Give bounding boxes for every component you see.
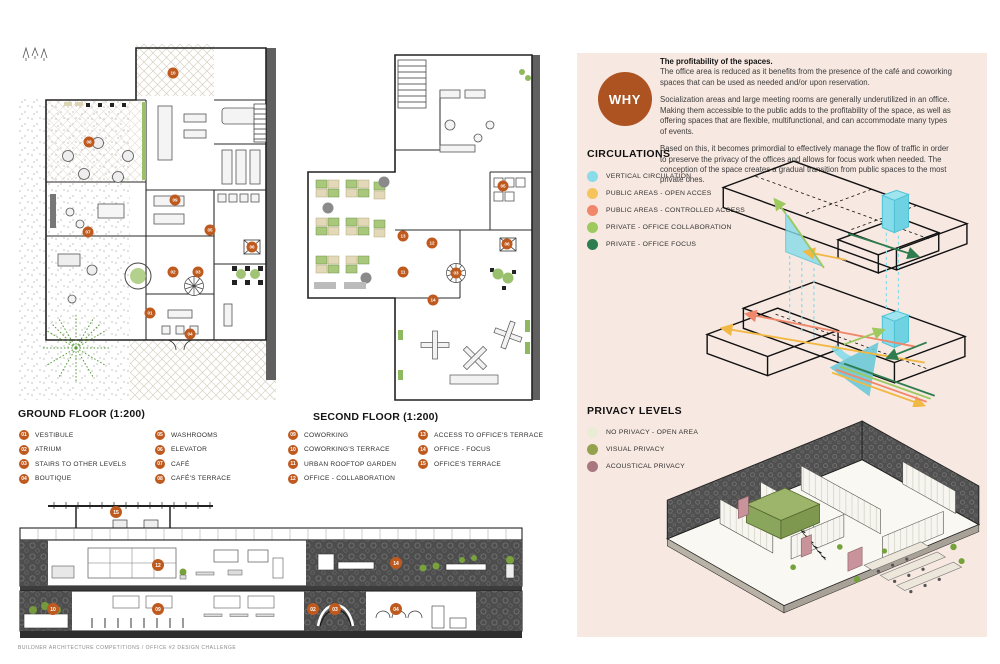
key-label: VERTICAL CIRCULATION <box>606 171 691 182</box>
legend-number-badge: 02 <box>19 445 29 455</box>
key-color-swatch <box>587 427 598 438</box>
plan-marker-12: 12 <box>152 559 164 571</box>
presentation-board: 10080905070602030104 <box>0 0 1000 664</box>
legend-item-01: 01VESTIBULE <box>19 430 126 440</box>
legend-label: ELEVATOR <box>171 446 207 453</box>
key-color-swatch <box>587 205 598 216</box>
svg-text:04: 04 <box>393 607 399 613</box>
right-panel: WHY The profitability of the spaces. The… <box>577 53 987 637</box>
site-tree-symbols <box>23 48 47 61</box>
legend-label: BOUTIQUE <box>35 475 71 482</box>
circulation-axonometric <box>685 155 977 407</box>
plan-marker-14: 14 <box>390 557 402 569</box>
legend-ground-col2: 05WASHROOMS06ELEVATOR07CAFÉ08CAFÉ'S TERR… <box>155 430 231 484</box>
legend-number-badge: 15 <box>418 459 428 469</box>
svg-text:04: 04 <box>187 332 193 337</box>
legend-item-04: 04BOUTIQUE <box>19 474 126 484</box>
plan-marker-10: 10 <box>47 603 59 615</box>
plan-marker-08: 08 <box>84 137 95 148</box>
plan-marker-04: 04 <box>185 329 196 340</box>
key-color-swatch <box>587 222 598 233</box>
plan-marker-05: 05 <box>498 181 509 192</box>
legend-label: COWORKING <box>304 432 348 439</box>
legend-ground-col1: 01VESTIBULE02ATRIUM03STAIRS TO OTHER LEV… <box>19 430 126 484</box>
svg-text:09: 09 <box>172 198 178 203</box>
legend-number-badge: 10 <box>288 445 298 455</box>
svg-text:13: 13 <box>400 234 406 239</box>
plan-marker-01: 01 <box>145 308 156 319</box>
ground-floor-plan: 10080905070602030104 <box>18 44 290 400</box>
why-badge: WHY <box>598 72 652 126</box>
legend-item-12: 12OFFICE - COLLABORATION <box>288 474 396 484</box>
plan-marker-10: 10 <box>168 68 179 79</box>
svg-text:14: 14 <box>393 561 399 567</box>
plan-marker-03: 03 <box>329 603 341 615</box>
legend-label: ACCESS TO OFFICE'S TERRACE <box>434 432 543 439</box>
legend-item-03: 03STAIRS TO OTHER LEVELS <box>19 459 126 469</box>
plan-marker-05: 05 <box>205 225 216 236</box>
legend-item-02: 02ATRIUM <box>19 445 126 455</box>
svg-text:10: 10 <box>50 607 56 613</box>
svg-text:14: 14 <box>430 298 436 303</box>
key-color-swatch <box>587 444 598 455</box>
plan-marker-06: 06 <box>502 239 513 250</box>
svg-text:01: 01 <box>147 311 153 316</box>
legend-number-badge: 01 <box>19 430 29 440</box>
legend-number-badge: 11 <box>288 459 298 469</box>
plan-marker-06: 06 <box>247 242 258 253</box>
second-floor-plan: 05131206110314 <box>300 30 560 405</box>
svg-text:08: 08 <box>86 140 92 145</box>
svg-text:12: 12 <box>155 563 161 569</box>
legend-item-13: 13ACCESS TO OFFICE'S TERRACE <box>418 430 543 440</box>
legend-label: STAIRS TO OTHER LEVELS <box>35 461 126 468</box>
key-color-swatch <box>587 188 598 199</box>
spiral-stair <box>185 277 204 296</box>
legend-item-05: 05WASHROOMS <box>155 430 231 440</box>
legend-item-06: 06ELEVATOR <box>155 445 231 455</box>
plan-marker-09: 09 <box>170 195 181 206</box>
legend-label: OFFICE'S TERRACE <box>434 461 501 468</box>
legend-item-07: 07CAFÉ <box>155 459 231 469</box>
legend-number-badge: 03 <box>19 459 29 469</box>
legend-second-col2: 13ACCESS TO OFFICE'S TERRACE14OFFICE - F… <box>418 430 543 469</box>
roof-pergola <box>48 502 213 528</box>
svg-text:06: 06 <box>249 245 255 250</box>
svg-text:11: 11 <box>401 270 406 275</box>
legend-number-badge: 04 <box>19 474 29 484</box>
privacy-axonometric <box>649 416 989 621</box>
svg-text:09: 09 <box>155 607 161 613</box>
svg-text:03: 03 <box>453 271 459 276</box>
legend-item-09: 09COWORKING <box>288 430 396 440</box>
legend-number-badge: 14 <box>418 445 428 455</box>
second-floor-title: SECOND FLOOR (1:200) <box>313 411 438 423</box>
svg-text:15: 15 <box>113 510 119 516</box>
plan-marker-13: 13 <box>398 231 409 242</box>
plan-marker-03: 03 <box>451 268 462 279</box>
meeting-room-furniture <box>154 106 206 224</box>
why-paragraph-2: Socialization areas and large meeting ro… <box>660 95 952 137</box>
plan-marker-07: 07 <box>83 227 94 238</box>
legend-label: CAFÉ <box>171 461 190 468</box>
why-heading: The profitability of the spaces. <box>660 57 952 67</box>
legend-second-col1: 09COWORKING10COWORKING'S TERRACE11URBAN … <box>288 430 396 484</box>
legend-number-badge: 07 <box>155 459 165 469</box>
legend-number-badge: 13 <box>418 430 428 440</box>
legend-number-badge: 05 <box>155 430 165 440</box>
board-footer: BUILDNER ARCHITECTURE COMPETITIONS / OFF… <box>18 645 236 651</box>
stair-glyph <box>398 60 426 108</box>
upper-floor-slab <box>723 161 967 273</box>
svg-text:03: 03 <box>332 607 338 613</box>
legend-item-08: 08CAFÉ'S TERRACE <box>155 474 231 484</box>
plan-marker-12: 12 <box>427 238 438 249</box>
building-section: 1512141009020304 <box>18 498 538 640</box>
plan-marker-03: 03 <box>193 267 204 278</box>
svg-text:06: 06 <box>504 242 510 247</box>
key-color-swatch <box>587 461 598 472</box>
key-color-swatch <box>587 171 598 182</box>
legend-label: COWORKING'S TERRACE <box>304 446 390 453</box>
svg-text:05: 05 <box>207 228 213 233</box>
legend-label: CAFÉ'S TERRACE <box>171 475 231 482</box>
plan-marker-14: 14 <box>428 295 439 306</box>
key-color-swatch <box>587 239 598 250</box>
plan-marker-11: 11 <box>398 267 409 278</box>
circulation-arrows <box>723 200 934 404</box>
plan-marker-02: 02 <box>307 603 319 615</box>
legend-label: WASHROOMS <box>171 432 218 439</box>
legend-label: ATRIUM <box>35 446 61 453</box>
plan-marker-09: 09 <box>152 603 164 615</box>
ground-floor-title: GROUND FLOOR (1:200) <box>18 408 145 420</box>
legend-label: VESTIBULE <box>35 432 74 439</box>
legend-item-11: 11URBAN ROOFTOP GARDEN <box>288 459 396 469</box>
legend-item-15: 15OFFICE'S TERRACE <box>418 459 543 469</box>
why-paragraph-1: The office area is reduced as it benefit… <box>660 67 952 88</box>
plan-marker-02: 02 <box>168 267 179 278</box>
circulations-title: CIRCULATIONS <box>587 148 670 160</box>
legend-item-14: 14OFFICE - FOCUS <box>418 445 543 455</box>
legend-number-badge: 06 <box>155 445 165 455</box>
boutique-fixtures <box>162 304 232 334</box>
plan-marker-15: 15 <box>110 506 122 518</box>
legend-label: URBAN ROOFTOP GARDEN <box>304 461 396 468</box>
plan-marker-04: 04 <box>390 603 402 615</box>
svg-text:02: 02 <box>170 270 176 275</box>
svg-text:12: 12 <box>429 241 435 246</box>
legend-label: OFFICE - FOCUS <box>434 446 491 453</box>
planted-seating <box>232 266 263 285</box>
legend-item-10: 10COWORKING'S TERRACE <box>288 445 396 455</box>
legend-number-badge: 12 <box>288 474 298 484</box>
svg-text:02: 02 <box>310 607 316 613</box>
stair-glyph <box>254 104 266 142</box>
svg-text:03: 03 <box>195 270 201 275</box>
legend-number-badge: 08 <box>155 474 165 484</box>
svg-text:10: 10 <box>170 71 176 76</box>
legend-number-badge: 09 <box>288 430 298 440</box>
svg-text:05: 05 <box>500 184 506 189</box>
key-label: PRIVATE - OFFICE FOCUS <box>606 239 696 250</box>
svg-text:07: 07 <box>85 230 91 235</box>
legend-label: OFFICE - COLLABORATION <box>304 475 395 482</box>
